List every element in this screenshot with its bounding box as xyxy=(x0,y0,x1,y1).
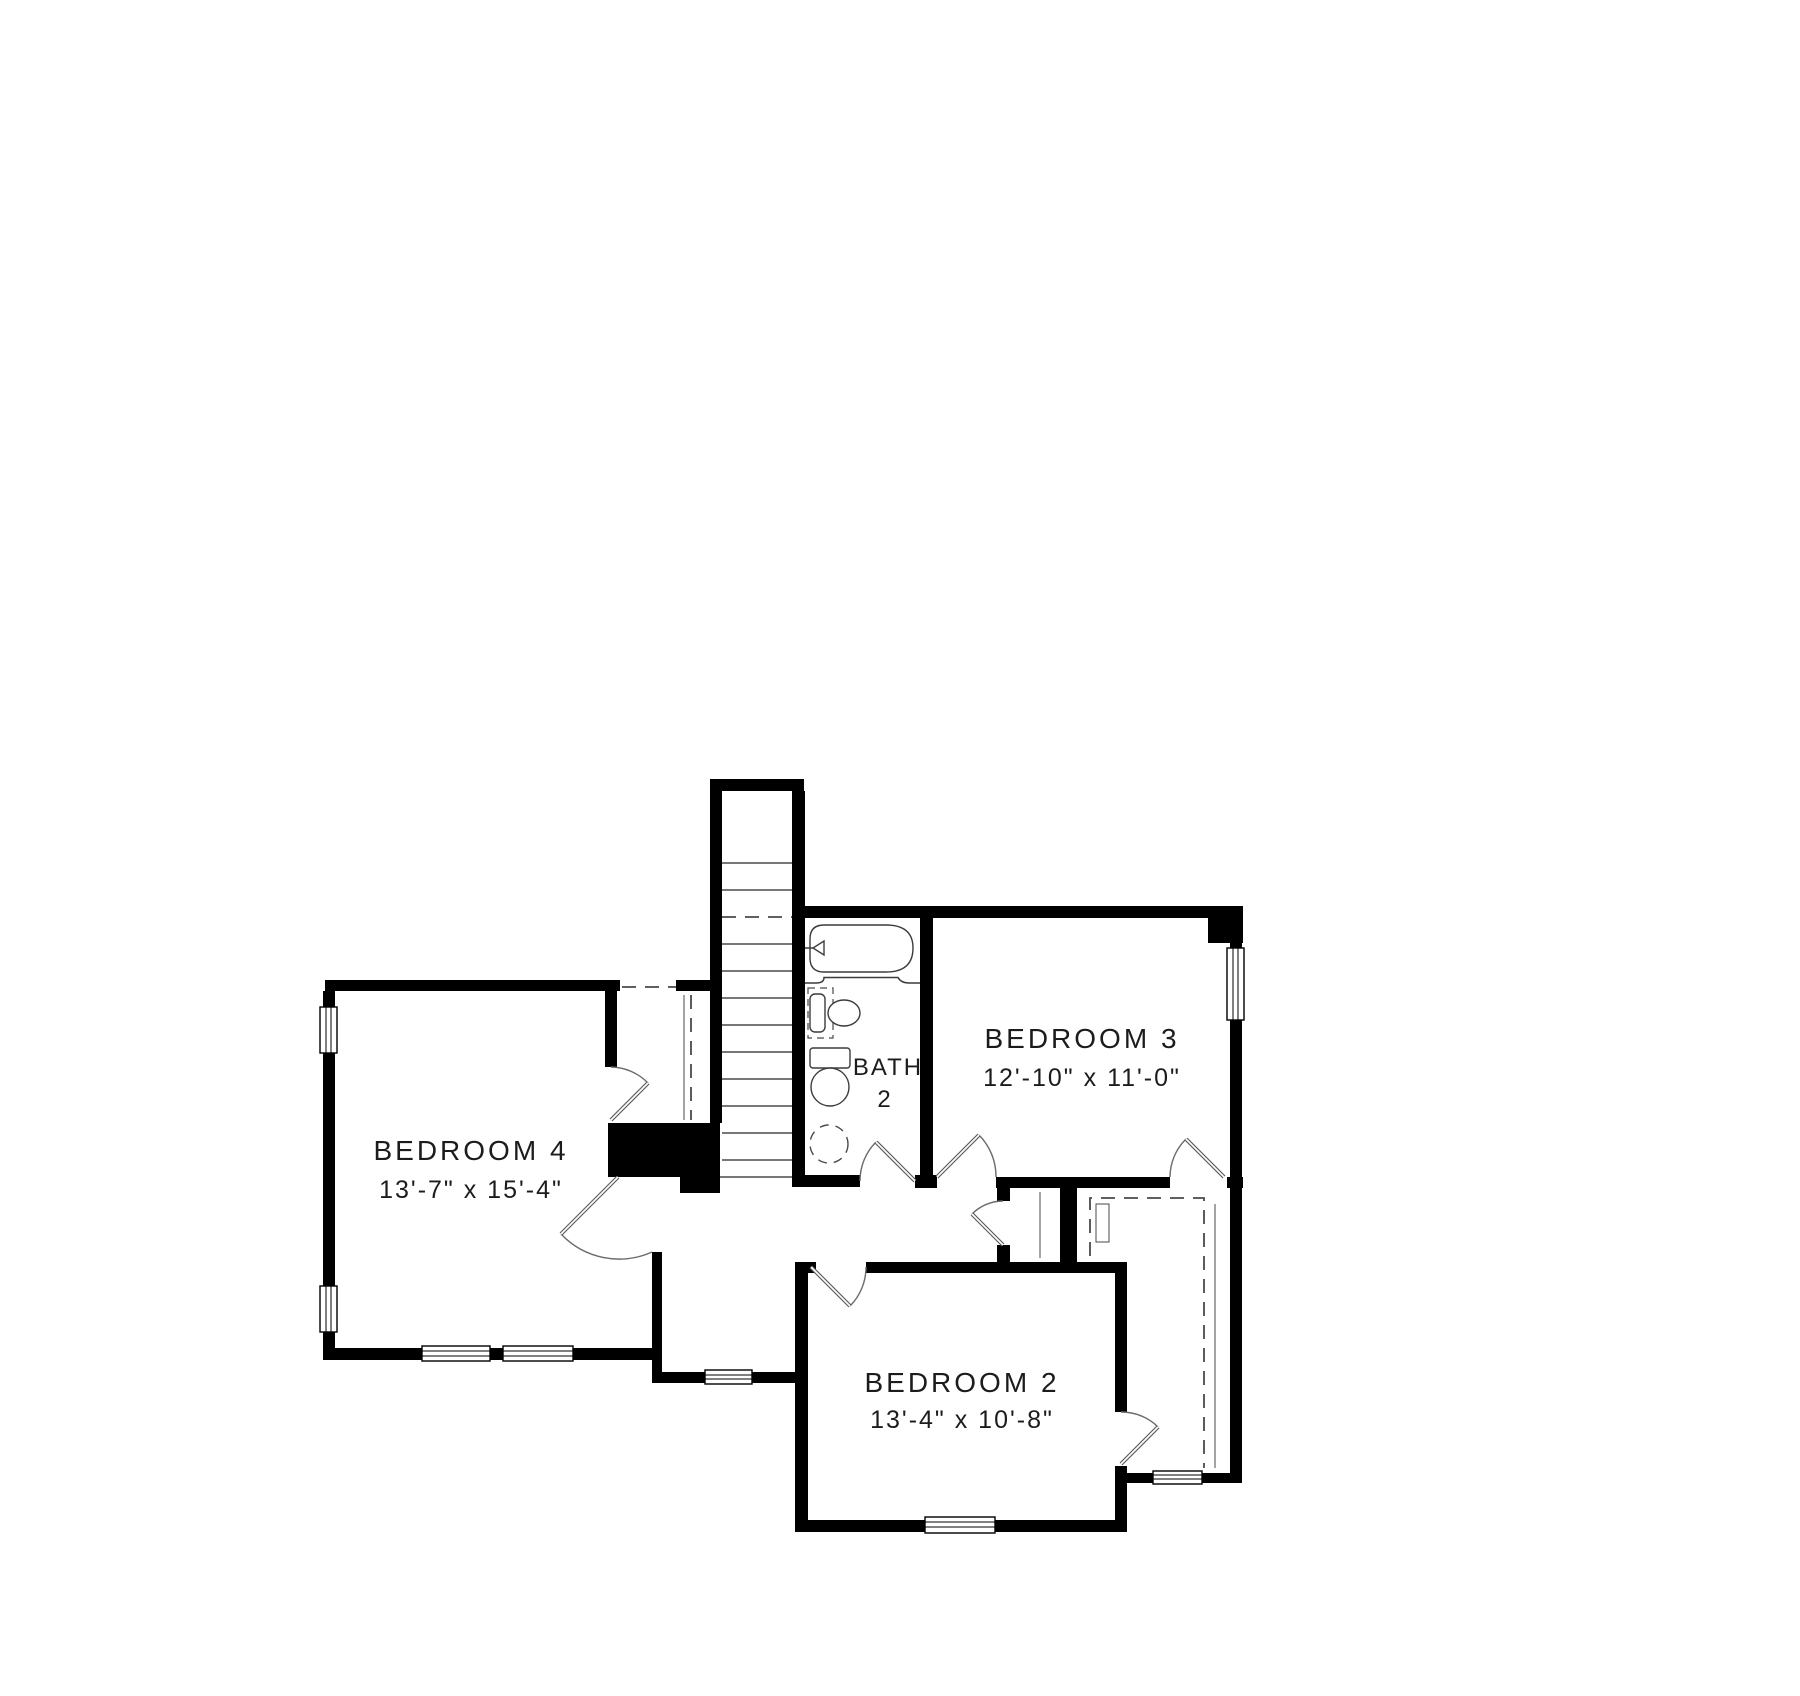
bed3-left-door-arc xyxy=(979,1135,996,1177)
wall-stair-right xyxy=(792,791,805,1187)
wall-stair-mass-foot xyxy=(680,1123,720,1193)
sink-icon xyxy=(828,1000,860,1026)
wall-bed4-bottom-b xyxy=(573,1348,662,1360)
wall-hall-bottom-b xyxy=(752,1372,808,1383)
staircase xyxy=(720,863,792,1177)
wall-bed4-right xyxy=(605,991,617,1067)
wall-closet-bottom-left xyxy=(1115,1473,1153,1483)
bedroom4-label: BEDROOM 4 xyxy=(373,1135,568,1166)
bedroom3-dimensions: 12'-10" x 11'-0" xyxy=(983,1064,1181,1092)
window xyxy=(503,1346,573,1361)
wall-stair-left xyxy=(710,791,722,1123)
wall-bed2-top xyxy=(866,1262,1127,1273)
wall-hall-bottom-a xyxy=(662,1372,705,1383)
bedroom2-label: BEDROOM 2 xyxy=(864,1367,1059,1398)
bathtub-icon xyxy=(810,925,913,972)
wall-bed3-door-jamb xyxy=(1227,1177,1243,1188)
bed2-entry-door-leaf-core xyxy=(811,1267,850,1306)
wall-bed4-left-b xyxy=(323,1053,335,1288)
wall-bed4-bottom-mid xyxy=(490,1348,503,1360)
toilet-tank-icon xyxy=(810,1048,850,1068)
wall-bed2-bottom-right xyxy=(995,1520,1127,1532)
bed2-closet-door-leaf-core xyxy=(1121,1427,1158,1464)
bed4-entry-door-arc xyxy=(561,1234,652,1259)
bedroom3-label: BEDROOM 3 xyxy=(984,1023,1179,1054)
bed3-left-door-leaf-core xyxy=(937,1135,979,1177)
window xyxy=(1227,948,1244,1020)
bed4-closet-door-leaf-core xyxy=(611,1083,648,1120)
bath-fixtures xyxy=(805,925,920,1163)
wall-bed2-right-upper xyxy=(1115,1262,1127,1412)
window xyxy=(925,1517,995,1533)
ceiling-fixture-dashed-icon xyxy=(810,1125,848,1163)
wall-bath-bed3-divider xyxy=(920,918,933,1188)
window xyxy=(1153,1471,1202,1484)
linen-closet-door-arc xyxy=(972,1201,1003,1214)
wall-bed4-left-c xyxy=(323,1332,335,1348)
wall-bed4-top xyxy=(325,980,620,991)
wall-bed2-bottom-left xyxy=(795,1520,925,1532)
walkin-closet-rod-dashed xyxy=(1090,1198,1204,1468)
wall-bed4-left-a xyxy=(323,991,335,1009)
linen-closet-door-leaf-core xyxy=(972,1214,1003,1245)
bed4-closet-door-arc xyxy=(611,1067,648,1083)
window xyxy=(422,1346,490,1361)
bed3-entry-door-arc xyxy=(1170,1139,1186,1177)
tub-deck-line xyxy=(805,978,920,984)
wall-bed4-bottom-a xyxy=(323,1348,422,1360)
bath2-label: BATH xyxy=(853,1054,923,1081)
wall-corner-column xyxy=(1208,912,1243,943)
wall-closet-divider xyxy=(1060,1188,1077,1262)
wall-bed4-top-right xyxy=(676,980,710,991)
wall-bath-door-jamb xyxy=(915,1175,937,1188)
bath2-number: 2 xyxy=(877,1086,892,1113)
wall-linen-left-upper xyxy=(997,1188,1010,1201)
bedroom2-dimensions: 13'-4" x 10'-8" xyxy=(870,1406,1054,1434)
bed2-entry-door-arc xyxy=(850,1267,866,1306)
floor-plan-canvas: BEDROOM 4 13'-7" x 15'-4" BEDROOM 3 12'-… xyxy=(0,0,1800,1696)
window xyxy=(320,1007,337,1053)
bed4-entry-door-leaf-core xyxy=(561,1177,618,1234)
floor-plan: BEDROOM 4 13'-7" x 15'-4" BEDROOM 3 12'-… xyxy=(0,0,1800,1696)
window xyxy=(320,1286,337,1332)
bed3-entry-door-leaf-core xyxy=(1186,1139,1224,1177)
wall-linen-left-lower xyxy=(997,1245,1010,1262)
wall-main-top xyxy=(805,906,1243,918)
window xyxy=(705,1370,752,1384)
bed2-closet-door-arc xyxy=(1121,1412,1158,1427)
toilet-bowl-icon xyxy=(811,1068,849,1106)
wall-stair-top xyxy=(710,779,804,791)
wall-bath-bottom xyxy=(792,1175,860,1187)
bath-door-leaf-core xyxy=(876,1142,915,1181)
walkin-closet-shelf-box xyxy=(1096,1204,1109,1242)
wall-hall-top xyxy=(996,1177,1170,1188)
wall-hall-jog xyxy=(652,1252,662,1383)
wall-closet-bottom-right xyxy=(1202,1473,1242,1483)
wall-bed3-right-lower xyxy=(1230,1020,1242,1483)
wall-bed2-left xyxy=(795,1262,808,1532)
vanity-cabinet-icon xyxy=(810,994,825,1032)
bedroom4-dimensions: 13'-7" x 15'-4" xyxy=(379,1176,563,1204)
bath-door-arc xyxy=(860,1142,876,1181)
